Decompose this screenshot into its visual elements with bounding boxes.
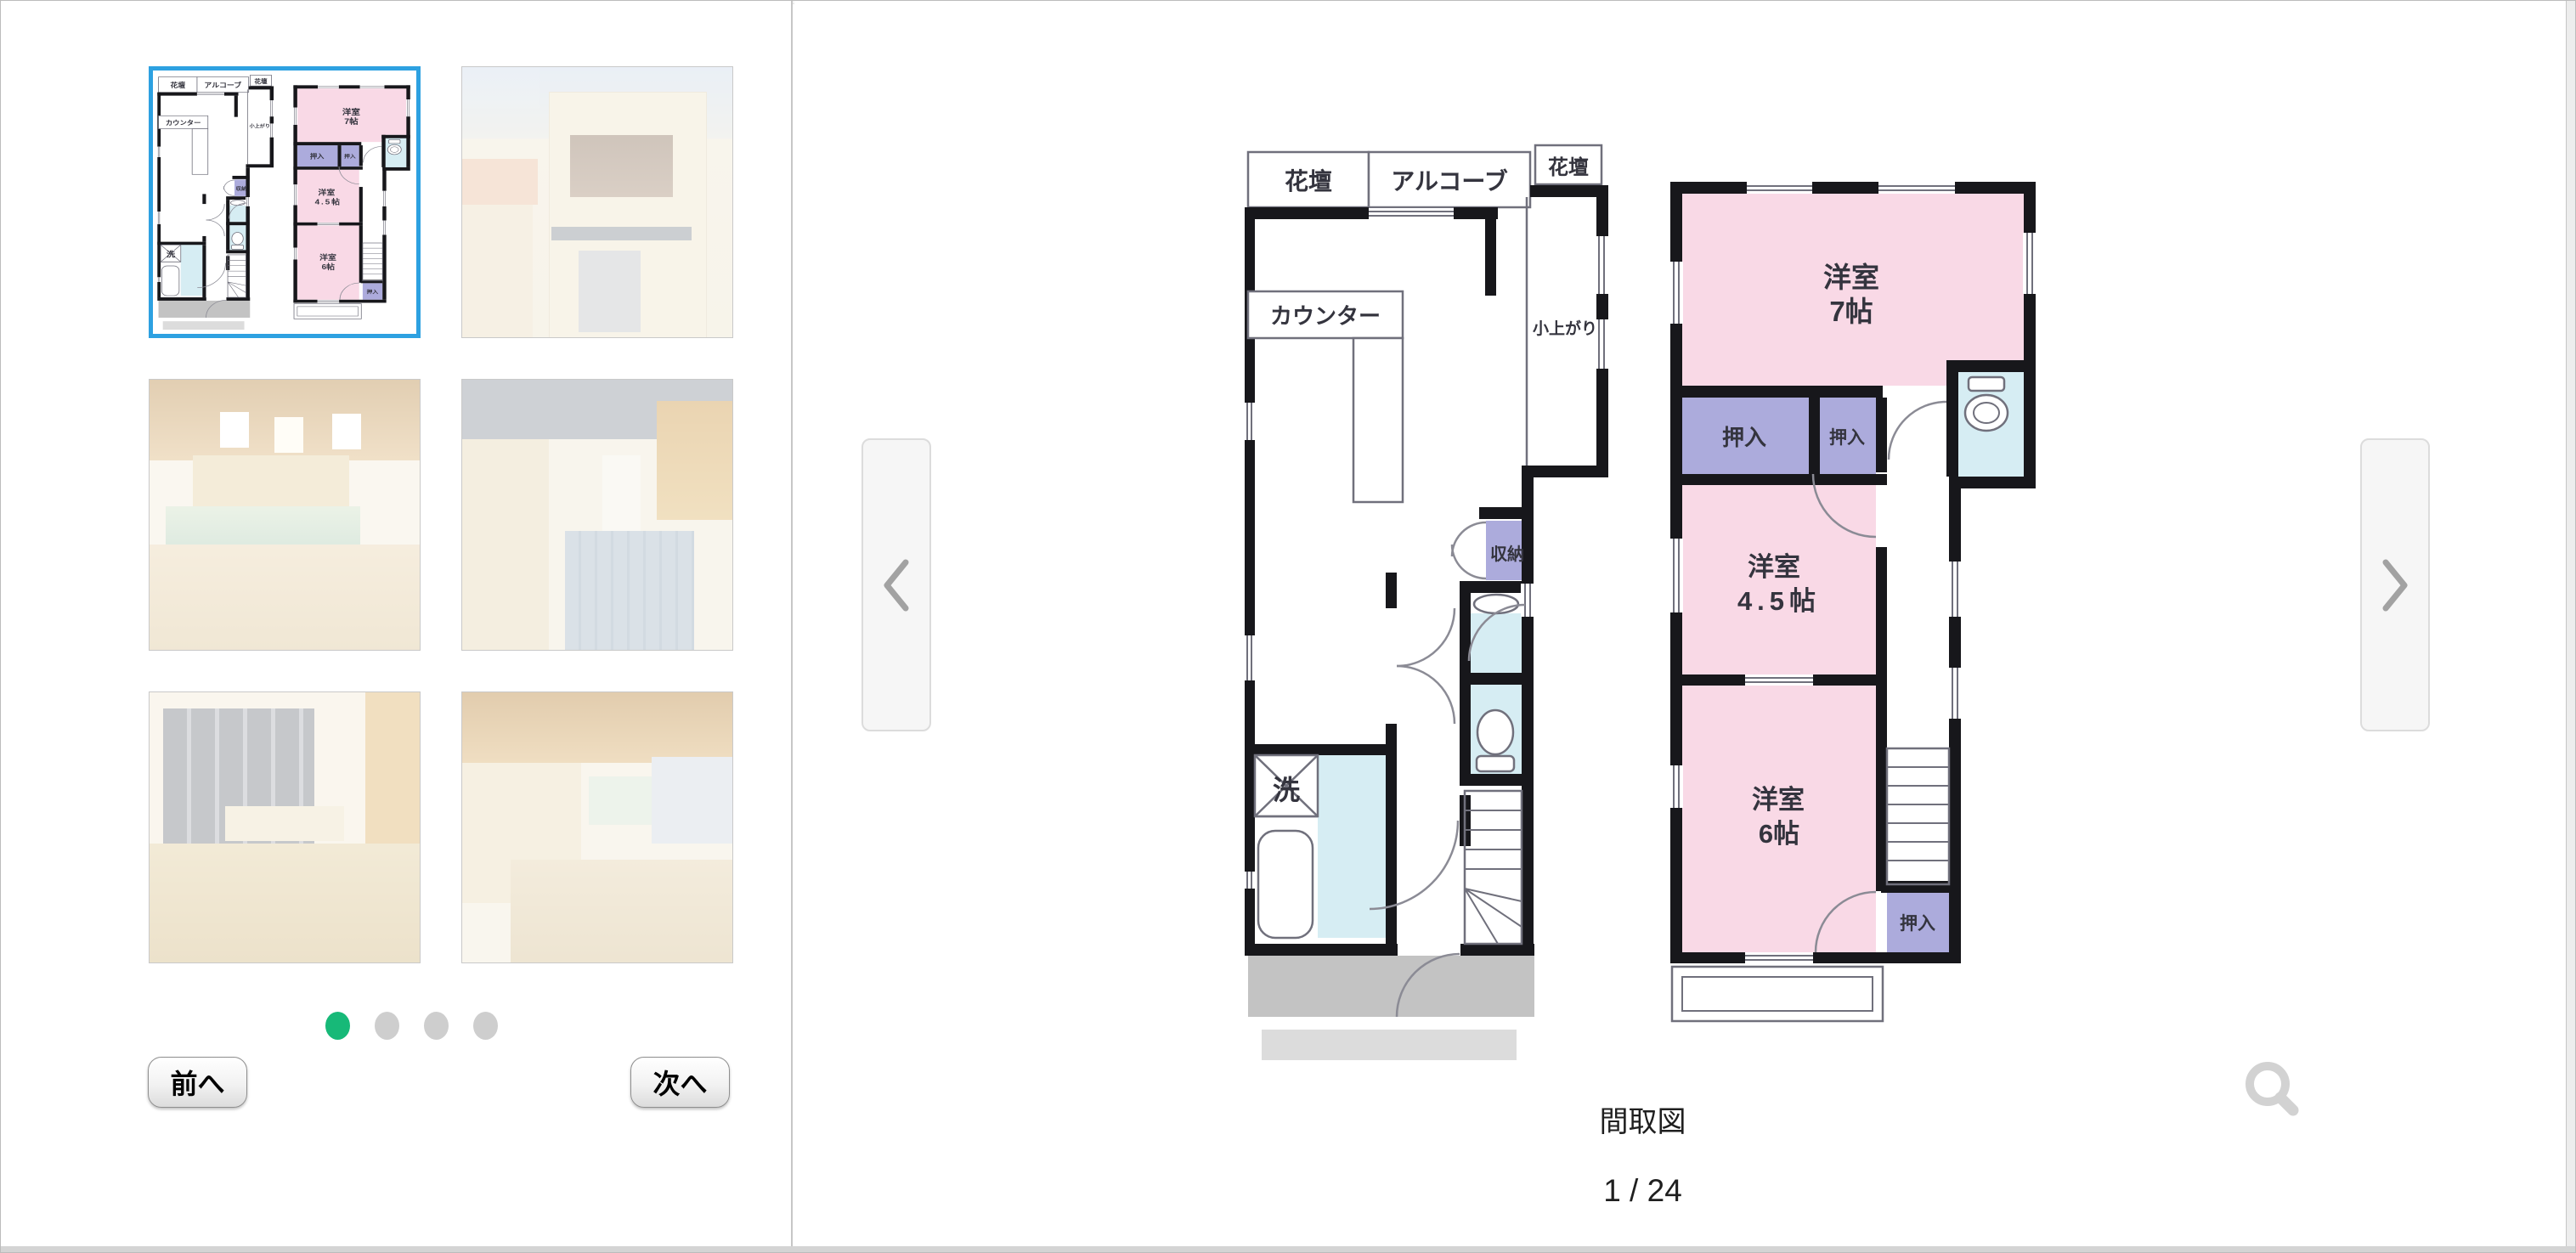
thumbnail-exterior[interactable] bbox=[461, 66, 733, 338]
pagination-dot-4[interactable] bbox=[473, 1012, 498, 1040]
chevron-right-icon bbox=[2378, 556, 2412, 615]
pagination-dot-2[interactable] bbox=[375, 1012, 399, 1040]
pagination-dot-3[interactable] bbox=[424, 1012, 449, 1040]
horizontal-scrollbar[interactable] bbox=[1, 1246, 2576, 1252]
interior-photo bbox=[462, 380, 732, 650]
image-page-indicator: 1 / 24 bbox=[1241, 1173, 2044, 1209]
property-photo-gallery: 前へ 次へ 間取図 1 / 24 bbox=[0, 0, 2576, 1253]
thumbnail-floorplan[interactable] bbox=[149, 66, 421, 338]
thumbnail-grid bbox=[149, 66, 733, 963]
thumbnail-interior-counter-2[interactable] bbox=[461, 691, 733, 963]
image-viewer: 間取図 1 / 24 bbox=[794, 1, 2576, 1248]
interior-photo bbox=[462, 692, 732, 962]
chevron-left-icon bbox=[879, 556, 913, 615]
thumbnail-interior-window-room[interactable] bbox=[149, 691, 421, 963]
zoom-button[interactable] bbox=[2240, 1058, 2305, 1122]
next-page-button[interactable]: 次へ bbox=[630, 1057, 730, 1108]
thumbnail-sidebar: 前へ 次へ bbox=[1, 1, 793, 1248]
magnifier-icon bbox=[2240, 1058, 2305, 1122]
pagination-dot-1[interactable] bbox=[325, 1012, 350, 1040]
vertical-scrollbar[interactable] bbox=[2566, 1, 2575, 1246]
interior-photo bbox=[150, 692, 420, 962]
next-image-arrow[interactable] bbox=[2360, 438, 2430, 731]
prev-page-button[interactable]: 前へ bbox=[148, 1057, 247, 1108]
thumbnail-interior-counter[interactable] bbox=[149, 379, 421, 651]
exterior-photo bbox=[462, 67, 732, 337]
thumbnail-interior-corridor[interactable] bbox=[461, 379, 733, 651]
image-caption: 間取図 bbox=[1241, 1098, 2044, 1140]
prev-image-arrow[interactable] bbox=[861, 438, 931, 731]
pagination-dots bbox=[325, 1012, 498, 1040]
interior-photo bbox=[150, 380, 420, 650]
floorplan-image bbox=[1241, 141, 2044, 1063]
main-image-floorplan bbox=[1241, 141, 2044, 1063]
floorplan-mini bbox=[156, 74, 413, 330]
